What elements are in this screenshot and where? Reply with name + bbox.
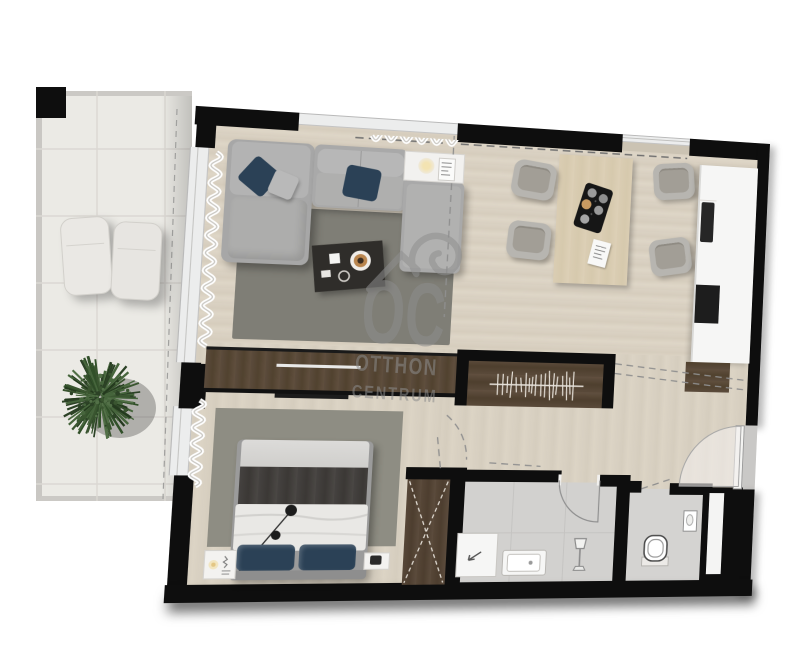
svg-text:OTTHON: OTTHON — [354, 351, 438, 381]
svg-text:OC: OC — [359, 260, 449, 366]
svg-text:CENTRUM: CENTRUM — [351, 382, 438, 407]
